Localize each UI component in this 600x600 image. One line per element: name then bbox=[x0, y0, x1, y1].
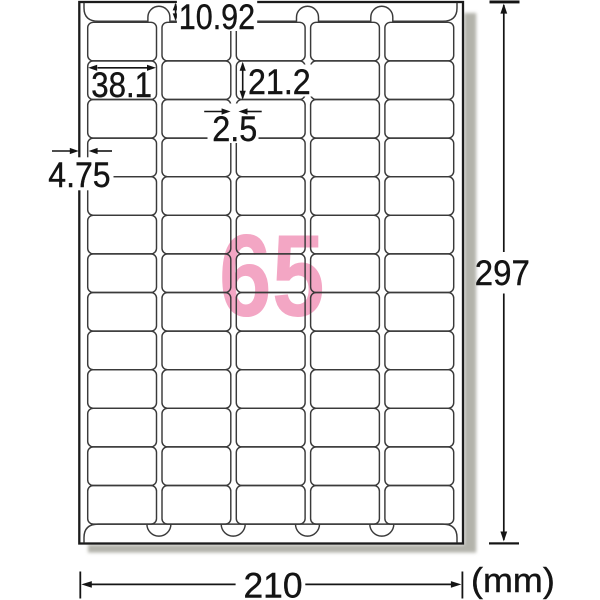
svg-text:65: 65 bbox=[219, 210, 325, 341]
svg-text:38.1: 38.1 bbox=[91, 66, 152, 105]
svg-text:210: 210 bbox=[244, 567, 303, 600]
svg-text:(mm): (mm) bbox=[471, 562, 555, 600]
svg-text:4.75: 4.75 bbox=[48, 156, 110, 195]
svg-text:2.5: 2.5 bbox=[212, 110, 257, 149]
svg-text:297: 297 bbox=[475, 254, 530, 293]
svg-text:21.2: 21.2 bbox=[248, 63, 311, 102]
svg-text:10.92: 10.92 bbox=[179, 0, 255, 37]
